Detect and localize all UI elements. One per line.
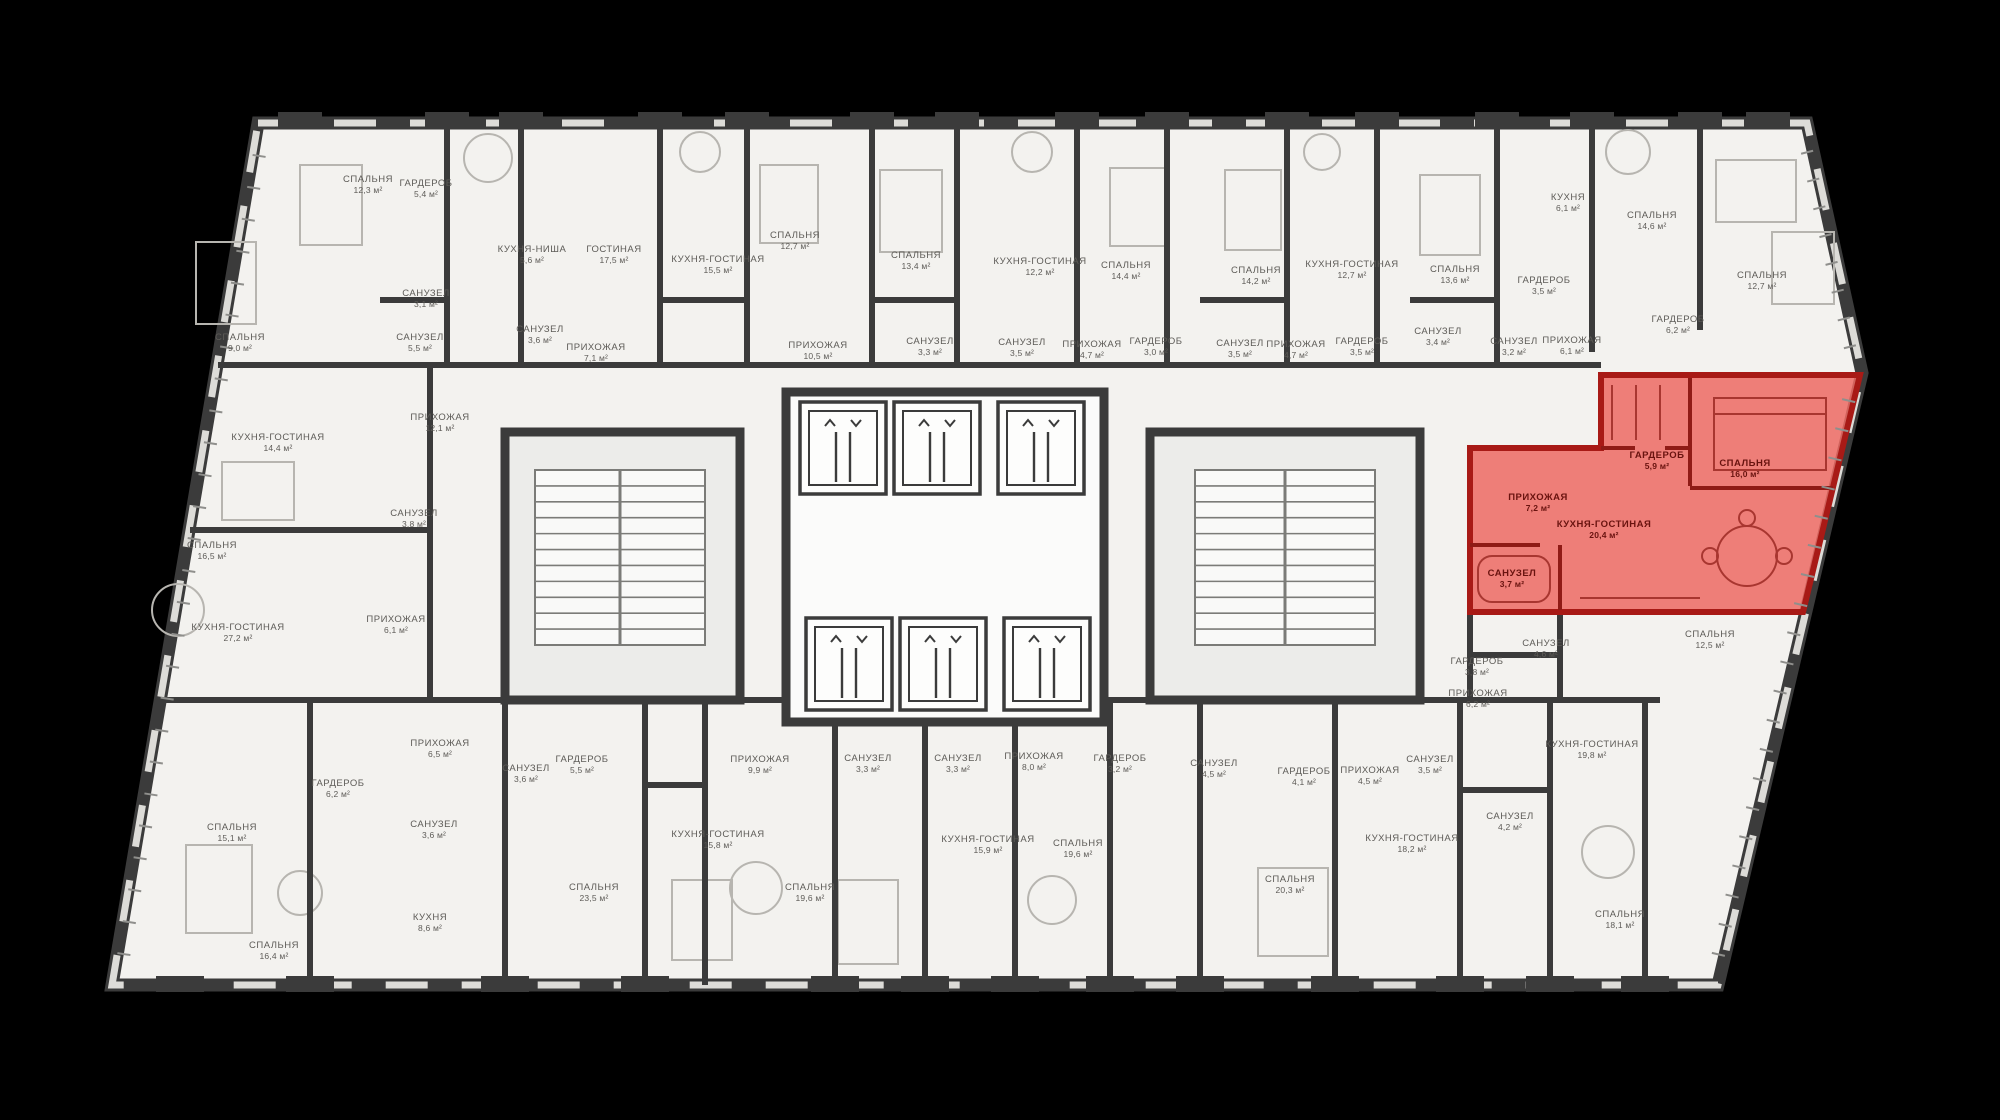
elevator-icon (806, 618, 892, 710)
facade-column (286, 976, 334, 992)
elevator-core (786, 392, 1104, 722)
facade-column (725, 112, 769, 128)
room-label: КУХНЯ8,6 м² (413, 912, 447, 933)
facade-column (1145, 112, 1189, 128)
floor-plan-page: СПАЛЬНЯ12,3 м²ГАРДЕРОБ5,4 м²КУХНЯ-НИША5,… (0, 0, 2000, 1120)
facade-column (156, 976, 204, 992)
facade-column (1526, 976, 1574, 992)
elevator-icon (1004, 618, 1090, 710)
facade-column (621, 976, 669, 992)
elevator-icon (998, 402, 1084, 494)
facade-column (811, 976, 859, 992)
facade-column (1355, 112, 1399, 128)
facade-column (901, 976, 949, 992)
facade-column (1436, 976, 1484, 992)
facade-column (1678, 112, 1722, 128)
staircase-right (1150, 432, 1420, 700)
facade-column (425, 112, 469, 128)
facade-column (1570, 112, 1614, 128)
facade-column (1475, 112, 1519, 128)
facade-column (1621, 976, 1669, 992)
facade-column (1746, 112, 1790, 128)
floor-plan: СПАЛЬНЯ12,3 м²ГАРДЕРОБ5,4 м²КУХНЯ-НИША5,… (0, 0, 2000, 1120)
facade-column (278, 112, 322, 128)
facade-column (850, 112, 894, 128)
facade-column (499, 112, 543, 128)
facade-column (638, 112, 682, 128)
facade-column (1055, 112, 1099, 128)
staircase-left (505, 432, 740, 700)
facade-column (1265, 112, 1309, 128)
facade-column (481, 976, 529, 992)
facade-column (1176, 976, 1224, 992)
elevator-icon (900, 618, 986, 710)
room-label: КУХНЯ6,1 м² (1551, 192, 1585, 213)
facade-column (991, 976, 1039, 992)
elevator-icon (800, 402, 886, 494)
facade-column (1311, 976, 1359, 992)
facade-column (1086, 976, 1134, 992)
facade-column (935, 112, 979, 128)
elevator-icon (894, 402, 980, 494)
